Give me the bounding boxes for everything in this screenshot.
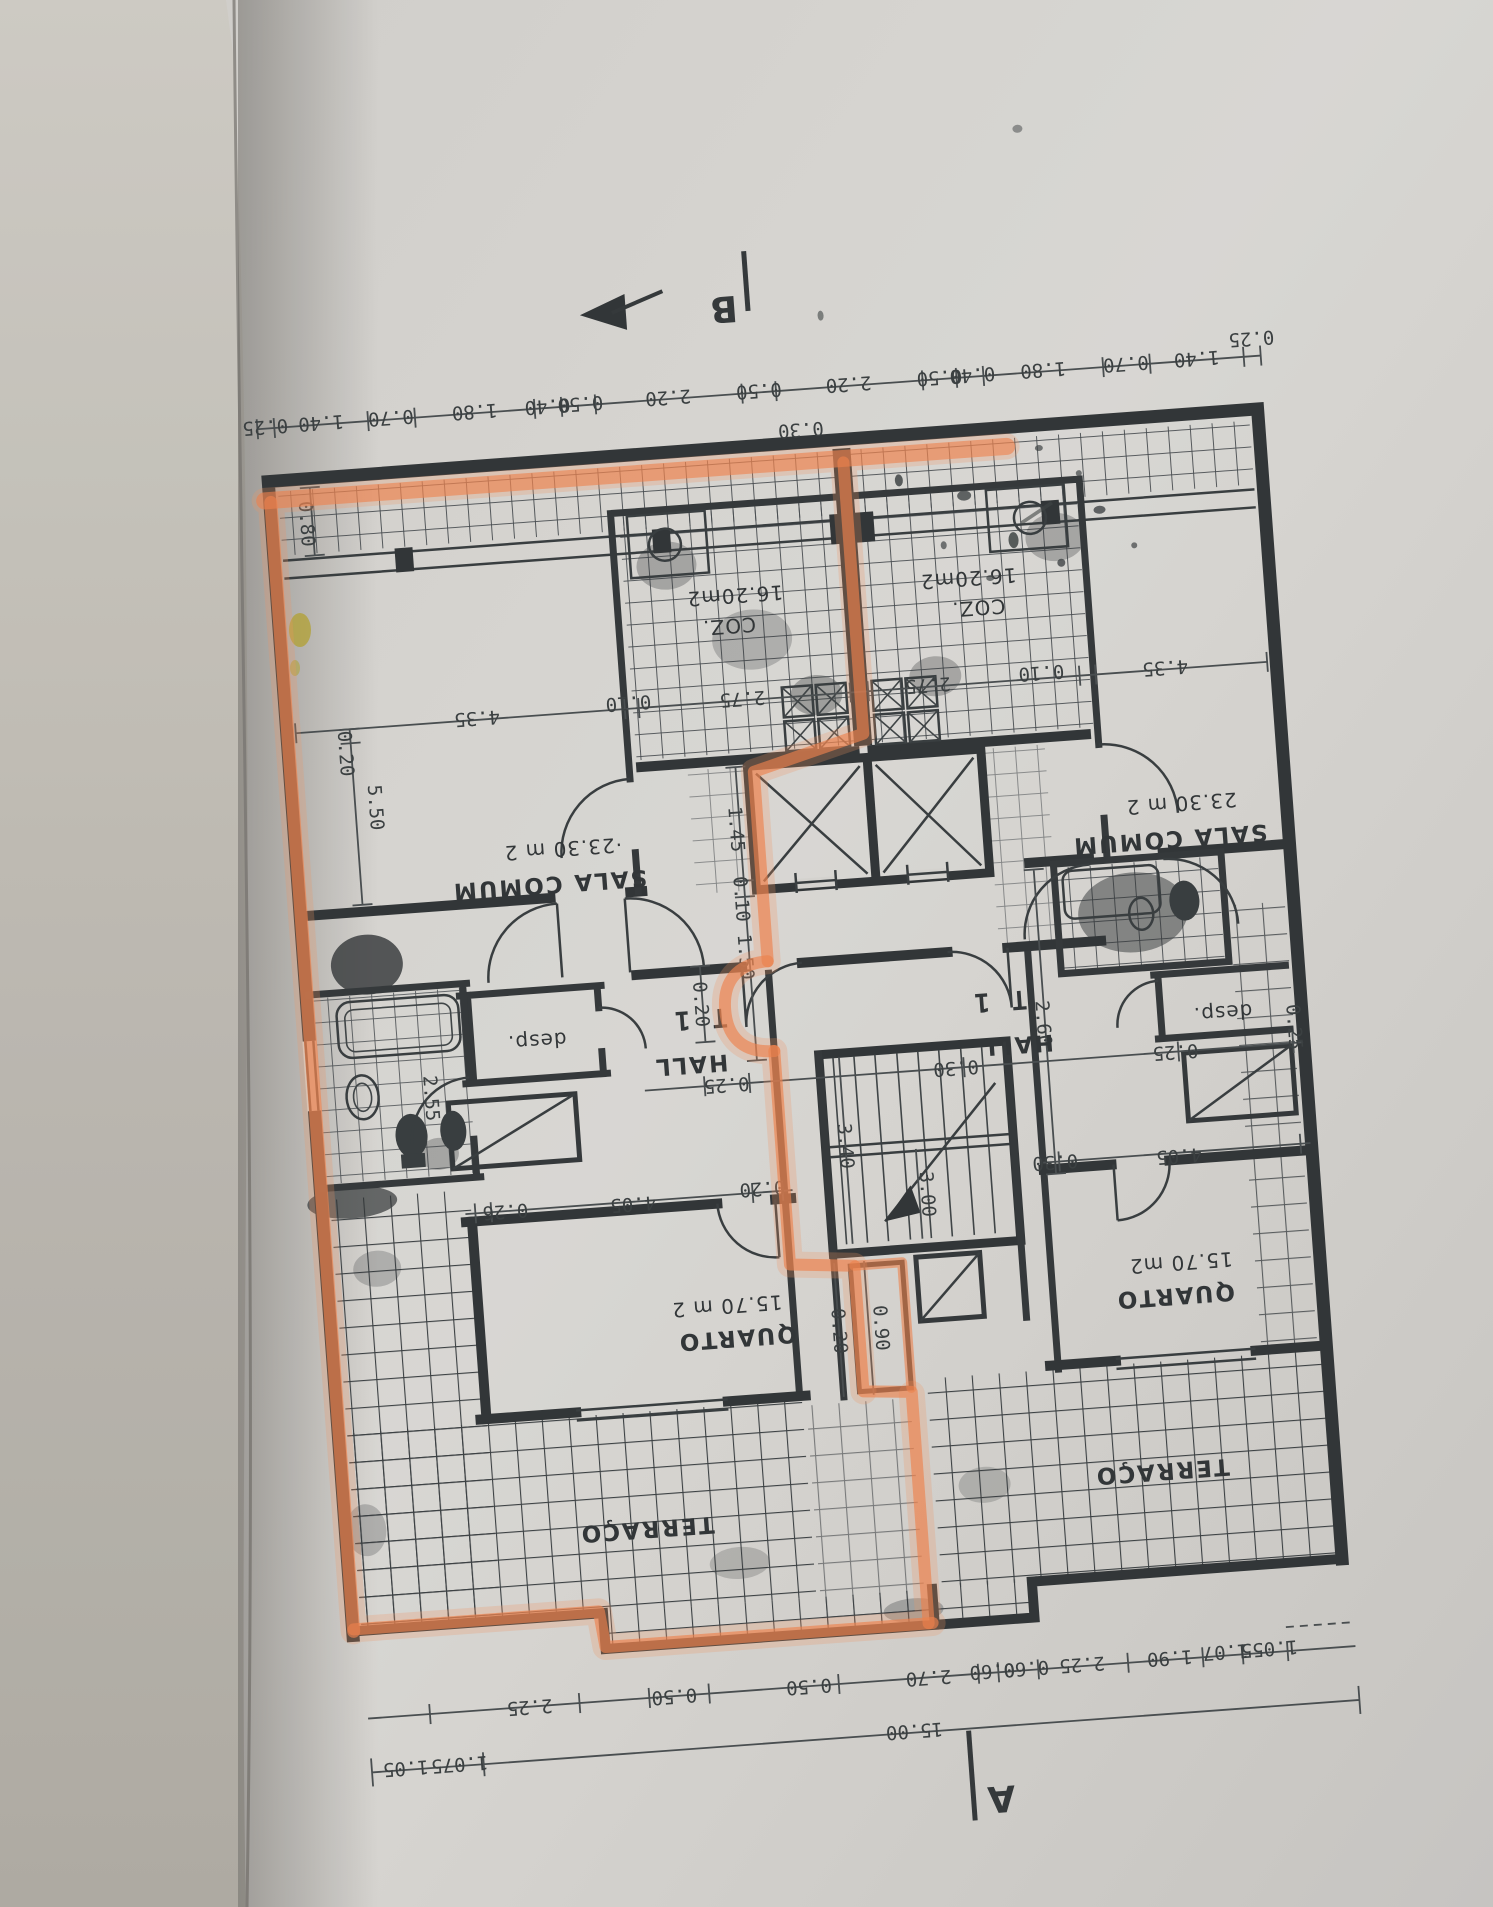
photo-vignette: [0, 0, 1493, 1907]
photo-of-floor-plan: 0.25 1.40 0.70 1.80 0.40 0.50 2.20 0.50 …: [0, 0, 1493, 1907]
